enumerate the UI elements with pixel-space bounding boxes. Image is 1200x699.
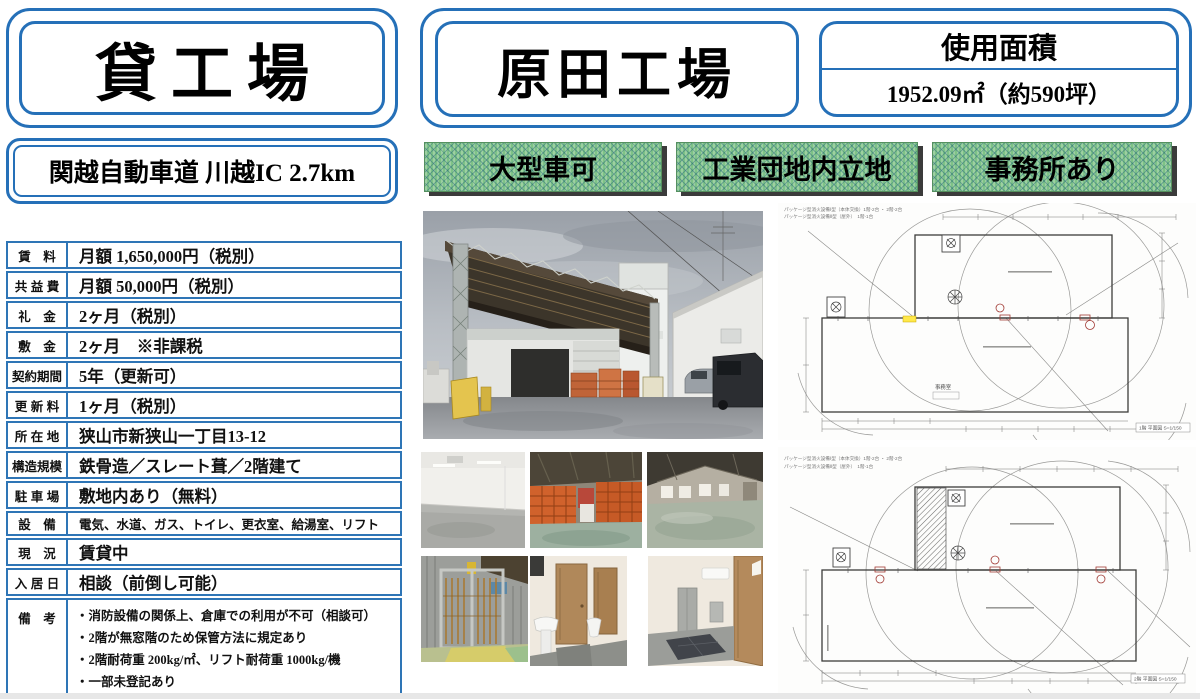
row-value: 敷地内あり（無料）: [68, 483, 400, 507]
remark-item: ・2階耐荷重 200kg/㎡、リフト耐荷重 1000kg/機: [76, 650, 396, 672]
row-label: 共 益 費: [8, 273, 68, 297]
plan1-room-label: 事務室: [935, 383, 952, 391]
table-row: 構造規模鉄骨造／スレート葺／2階建て: [6, 451, 402, 479]
plan2-title: 2階 平面図 S=1/150: [1134, 676, 1177, 683]
flyer-page: 貸工場 関越自動車道 川越IC 2.7km 原田工場 使用面積 1952.09㎡…: [0, 0, 1200, 699]
row-value: 相談（前倒し可能）: [68, 570, 400, 594]
remarks-list: ・消防設備の関係上、倉庫での利用が不可（相談可） ・2階が無窓階のため保管方法に…: [68, 600, 400, 699]
row-label: 設 備: [8, 513, 68, 534]
row-value: 月額 1,650,000円（税別）: [68, 243, 400, 267]
table-row: 更 新 料1ヶ月（税別）: [6, 391, 402, 419]
badge-label: 事務所あり: [985, 148, 1120, 187]
plan1-caption-line1: パッケージ型消火設備Ⅰ型（本体交換）1階-2台 ・ 2階-2台: [784, 206, 903, 213]
remark-item: ・一部未登記あり: [76, 672, 396, 694]
row-label: 所 在 地: [8, 423, 68, 447]
area-box: 使用面積 1952.09㎡（約590坪）: [819, 21, 1179, 117]
row-label: 敷 金: [8, 333, 68, 357]
plan1-title: 1階 平面図 S=1/150: [1139, 425, 1182, 432]
row-label: 賃 料: [8, 243, 68, 267]
table-row: 礼 金2ヶ月（税別）: [6, 301, 402, 329]
table-row-remarks: 備 考 ・消防設備の関係上、倉庫での利用が不可（相談可） ・2階が無窓階のため保…: [6, 598, 402, 699]
table-row: 敷 金2ヶ月 ※非課税: [6, 331, 402, 359]
table-row: 賃 料月額 1,650,000円（税別）: [6, 241, 402, 269]
row-label: 更 新 料: [8, 393, 68, 417]
plan1-caption-line2: パッケージ型消火設備Ⅱ型（屋外） 1階-1台: [784, 213, 874, 220]
row-label: 構造規模: [8, 453, 68, 477]
page-bottom-edge: [0, 693, 1200, 699]
badge-large-vehicles: 大型車可: [424, 142, 662, 192]
header-right-container: 原田工場 使用面積 1952.09㎡（約590坪）: [420, 8, 1192, 128]
photo-main-exterior: [423, 211, 763, 439]
row-label: 契約期間: [8, 363, 68, 387]
table-row: 現 況賃貸中: [6, 538, 402, 566]
property-name-box: 原田工場: [435, 21, 799, 117]
photo-orange-crates: [530, 452, 642, 548]
row-value: 電気、水道、ガス、トイレ、更衣室、給湯室、リフト: [68, 513, 400, 534]
photo-warehouse-truss: [647, 452, 763, 548]
row-value: 狭山市新狭山一丁目13-12: [68, 423, 400, 447]
row-label: 駐 車 場: [8, 483, 68, 507]
row-value: 賃貸中: [68, 540, 400, 564]
plan2-caption-line1: パッケージ型消火設備Ⅰ型（本体交換）1階-2台 ・ 2階-2台: [784, 455, 903, 462]
area-value: 1952.09㎡（約590坪）: [822, 70, 1176, 114]
badge-office: 事務所あり: [932, 142, 1172, 192]
photo-hallway: [648, 556, 763, 666]
photo-washroom: [530, 556, 627, 666]
badge-industrial-park: 工業団地内立地: [676, 142, 918, 192]
table-row: 所 在 地狭山市新狭山一丁目13-12: [6, 421, 402, 449]
photo-freight-lift: [421, 556, 528, 662]
row-value: 5年（更新可）: [68, 363, 400, 387]
area-label: 使用面積: [822, 24, 1176, 70]
access-box: 関越自動車道 川越IC 2.7km: [6, 138, 398, 204]
property-type-box: 貸工場: [6, 8, 398, 128]
badge-label: 大型車可: [489, 148, 597, 187]
badge-label: 工業団地内立地: [703, 148, 892, 187]
row-label: 入 居 日: [8, 570, 68, 594]
table-row: 契約期間5年（更新可）: [6, 361, 402, 389]
row-label: 現 況: [8, 540, 68, 564]
row-label: 備 考: [8, 600, 68, 699]
row-value: 2ヶ月（税別）: [68, 303, 400, 327]
table-row: 駐 車 場敷地内あり（無料）: [6, 481, 402, 509]
photo-white-room: [421, 452, 525, 548]
floorplan-1f: パッケージ型消火設備Ⅰ型（本体交換）1階-2台 ・ 2階-2台 パッケージ型消火…: [778, 203, 1196, 440]
plan2-caption-line2: パッケージ型消火設備Ⅱ型（屋外） 1階-1台: [784, 463, 874, 470]
row-value: 鉄骨造／スレート葺／2階建て: [68, 453, 400, 477]
remark-item: ・消防設備の関係上、倉庫での利用が不可（相談可）: [76, 606, 396, 628]
row-value: 月額 50,000円（税別）: [68, 273, 400, 297]
table-row: 共 益 費月額 50,000円（税別）: [6, 271, 402, 299]
property-type-title: 貸工場: [81, 23, 323, 113]
table-row: 入 居 日相談（前倒し可能）: [6, 568, 402, 596]
row-label: 礼 金: [8, 303, 68, 327]
property-name-title: 原田工場: [497, 30, 737, 109]
floorplan-2f: パッケージ型消火設備Ⅰ型（本体交換）1階-2台 ・ 2階-2台 パッケージ型消火…: [778, 447, 1196, 693]
row-value: 2ヶ月 ※非課税: [68, 333, 400, 357]
details-table: 賃 料月額 1,650,000円（税別） 共 益 費月額 50,000円（税別）…: [6, 241, 402, 693]
row-value: 1ヶ月（税別）: [68, 393, 400, 417]
access-text: 関越自動車道 川越IC 2.7km: [49, 153, 355, 189]
table-row: 設 備電気、水道、ガス、トイレ、更衣室、給湯室、リフト: [6, 511, 402, 536]
remark-item: ・2階が無窓階のため保管方法に規定あり: [76, 628, 396, 650]
